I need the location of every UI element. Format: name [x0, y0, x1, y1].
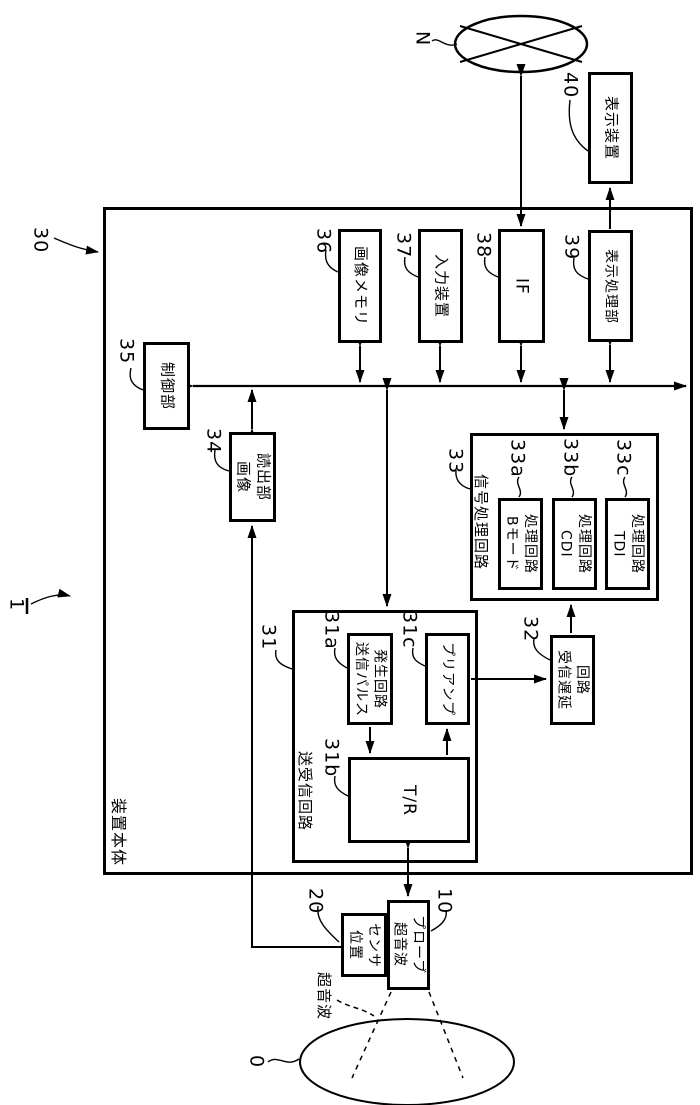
- ref-37: 37: [391, 226, 415, 264]
- ref-32: 32: [518, 610, 542, 648]
- box-preamp: プリアンプ: [425, 633, 470, 725]
- control-unit-text: 制御部: [157, 362, 177, 410]
- ref-1: 1: [6, 592, 26, 618]
- box-input-device: 入力装置: [418, 229, 463, 343]
- box-image-readout: 画像 読出部: [229, 432, 276, 522]
- tx-pulse-gen-text: 送信パルス 発生回路: [352, 642, 389, 717]
- patent-block-diagram: 装置本体 信号処理回路 送受信回路 表示装置 制御部 画像メモリ 入力装置 IF…: [0, 0, 700, 1105]
- display-device-text: 表示装置: [601, 96, 621, 160]
- main-body-label: 装置本体: [108, 786, 134, 878]
- ref-N: N: [412, 26, 432, 52]
- ref-33b: 33b: [559, 434, 581, 482]
- box-b-mode-circuit: Bモード 処理回路: [498, 498, 543, 590]
- box-image-memory: 画像メモリ: [338, 229, 382, 343]
- preamp-text: プリアンプ: [438, 642, 456, 716]
- rx-delay-text: 受信遅延 回路: [554, 650, 591, 710]
- box-cdi-circuit: CDI 処理回路: [552, 498, 597, 590]
- box-interface: IF: [498, 229, 545, 343]
- box-display-processing: 表示処理部: [588, 230, 633, 342]
- ultrasound-beam-label: 超音波: [313, 966, 337, 1026]
- probe-text: 超音波 プローブ: [390, 915, 427, 974]
- box-t-r-switch: T/R: [348, 757, 470, 843]
- ref-31: 31: [256, 618, 280, 656]
- box-rx-delay: 受信遅延 回路: [550, 635, 595, 725]
- ref-0: 0: [244, 1048, 268, 1076]
- ref-36: 36: [311, 222, 335, 260]
- box-tdi-circuit: TDI 処理回路: [605, 498, 650, 590]
- display-processing-text: 表示処理部: [601, 249, 619, 324]
- ref-33c: 33c: [612, 434, 634, 482]
- image-memory-text: 画像メモリ: [350, 246, 370, 326]
- subject-ellipse: [300, 1019, 514, 1105]
- ref-39: 39: [559, 228, 583, 266]
- interface-text: IF: [510, 278, 532, 295]
- ref-31c: 31c: [398, 606, 420, 654]
- ref-34: 34: [201, 422, 225, 460]
- ref-31a: 31a: [320, 606, 342, 654]
- tx-rx-circuit-label: 送受信回路: [294, 736, 318, 846]
- ref-40: 40: [558, 66, 582, 104]
- b-mode-circuit-text: Bモード 処理回路: [502, 514, 539, 574]
- ref-38: 38: [471, 226, 495, 264]
- ref-20: 20: [303, 882, 327, 920]
- image-readout-text: 画像 読出部: [233, 453, 273, 501]
- network-symbol: [455, 16, 587, 72]
- ref-31b: 31b: [320, 734, 342, 782]
- ref-10: 10: [433, 882, 455, 920]
- box-display-device: 表示装置: [588, 72, 633, 184]
- ref-33: 33: [444, 442, 466, 480]
- ref-33a: 33a: [506, 434, 528, 482]
- ref-30: 30: [28, 221, 52, 259]
- cdi-circuit-text: CDI 処理回路: [556, 514, 593, 574]
- input-device-text: 入力装置: [431, 254, 451, 318]
- box-control-unit: 制御部: [143, 342, 190, 430]
- ref-35: 35: [114, 332, 138, 370]
- t-r-switch-text: T/R: [398, 785, 420, 816]
- box-position-sensor: 位置 センサ: [341, 913, 387, 977]
- tdi-circuit-text: TDI 処理回路: [609, 514, 646, 574]
- position-sensor-text: 位置 センサ: [346, 923, 383, 968]
- box-probe: 超音波 プローブ: [387, 900, 430, 990]
- signal-processing-label: 信号処理回路: [470, 462, 494, 582]
- box-tx-pulse-gen: 送信パルス 発生回路: [347, 633, 393, 725]
